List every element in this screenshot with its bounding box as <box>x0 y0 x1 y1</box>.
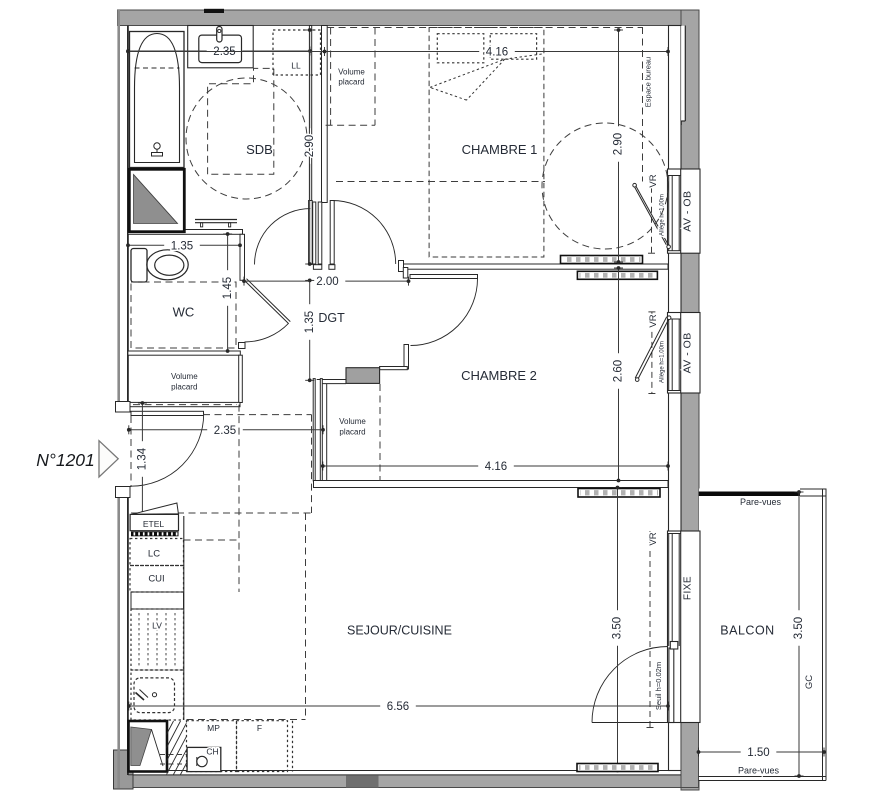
svg-text:2.90: 2.90 <box>304 135 316 157</box>
svg-text:Volume: Volume <box>338 68 365 77</box>
svg-text:Volume: Volume <box>171 372 198 381</box>
svg-text:VR: VR <box>648 314 659 327</box>
svg-text:BALCON: BALCON <box>720 624 774 638</box>
svg-text:SEJOUR/CUISINE: SEJOUR/CUISINE <box>347 624 452 638</box>
svg-text:Volume: Volume <box>339 417 366 426</box>
svg-text:FIXE: FIXE <box>683 576 694 600</box>
svg-text:Seuil h=0.02m: Seuil h=0.02m <box>654 662 663 710</box>
svg-text:1.35: 1.35 <box>304 311 316 333</box>
svg-text:placard: placard <box>339 428 365 437</box>
svg-text:placard: placard <box>338 78 364 87</box>
svg-text:placard: placard <box>171 383 197 392</box>
svg-text:AV - OB: AV - OB <box>682 190 694 231</box>
svg-text:2.00: 2.00 <box>316 276 338 288</box>
svg-text:GC: GC <box>804 675 815 689</box>
svg-text:CHAMBRE 2: CHAMBRE 2 <box>461 368 537 383</box>
svg-text:4.16: 4.16 <box>485 461 507 473</box>
svg-text:WC: WC <box>173 305 195 320</box>
svg-text:AV - OB: AV - OB <box>682 332 694 373</box>
svg-text:VR: VR <box>648 174 659 187</box>
svg-text:Pare-vues: Pare-vues <box>738 765 780 775</box>
svg-text:2.35: 2.35 <box>214 425 236 437</box>
svg-text:Allège h=1.00m: Allège h=1.00m <box>660 341 666 383</box>
svg-text:LC: LC <box>148 549 160 560</box>
svg-text:2.90: 2.90 <box>613 133 625 155</box>
svg-text:CH: CH <box>206 747 218 757</box>
svg-text:LL: LL <box>291 61 301 71</box>
svg-text:1.45: 1.45 <box>222 277 234 299</box>
svg-text:VR: VR <box>648 532 659 545</box>
svg-text:CUI: CUI <box>148 574 164 585</box>
svg-text:2.60: 2.60 <box>613 360 625 382</box>
svg-text:1.34: 1.34 <box>137 447 149 470</box>
svg-text:F: F <box>257 723 262 733</box>
svg-text:N°1201: N°1201 <box>36 450 95 470</box>
svg-text:MP: MP <box>207 723 220 733</box>
svg-text:3.50: 3.50 <box>612 617 624 639</box>
svg-text:Espace bureau: Espace bureau <box>644 57 653 107</box>
svg-text:4.16: 4.16 <box>486 47 508 59</box>
svg-text:SDB: SDB <box>246 142 273 157</box>
svg-text:6.56: 6.56 <box>387 701 409 713</box>
svg-text:Pare-vues: Pare-vues <box>740 497 782 507</box>
svg-text:1.35: 1.35 <box>171 240 193 252</box>
svg-text:CHAMBRE 1: CHAMBRE 1 <box>462 142 538 157</box>
svg-text:ETEL: ETEL <box>143 519 165 529</box>
svg-text:1.50: 1.50 <box>747 747 769 759</box>
svg-text:DGT: DGT <box>318 311 345 325</box>
svg-text:LV: LV <box>152 621 162 631</box>
svg-text:Allège h=1.00m: Allège h=1.00m <box>660 194 666 236</box>
svg-text:3.50: 3.50 <box>793 617 805 639</box>
